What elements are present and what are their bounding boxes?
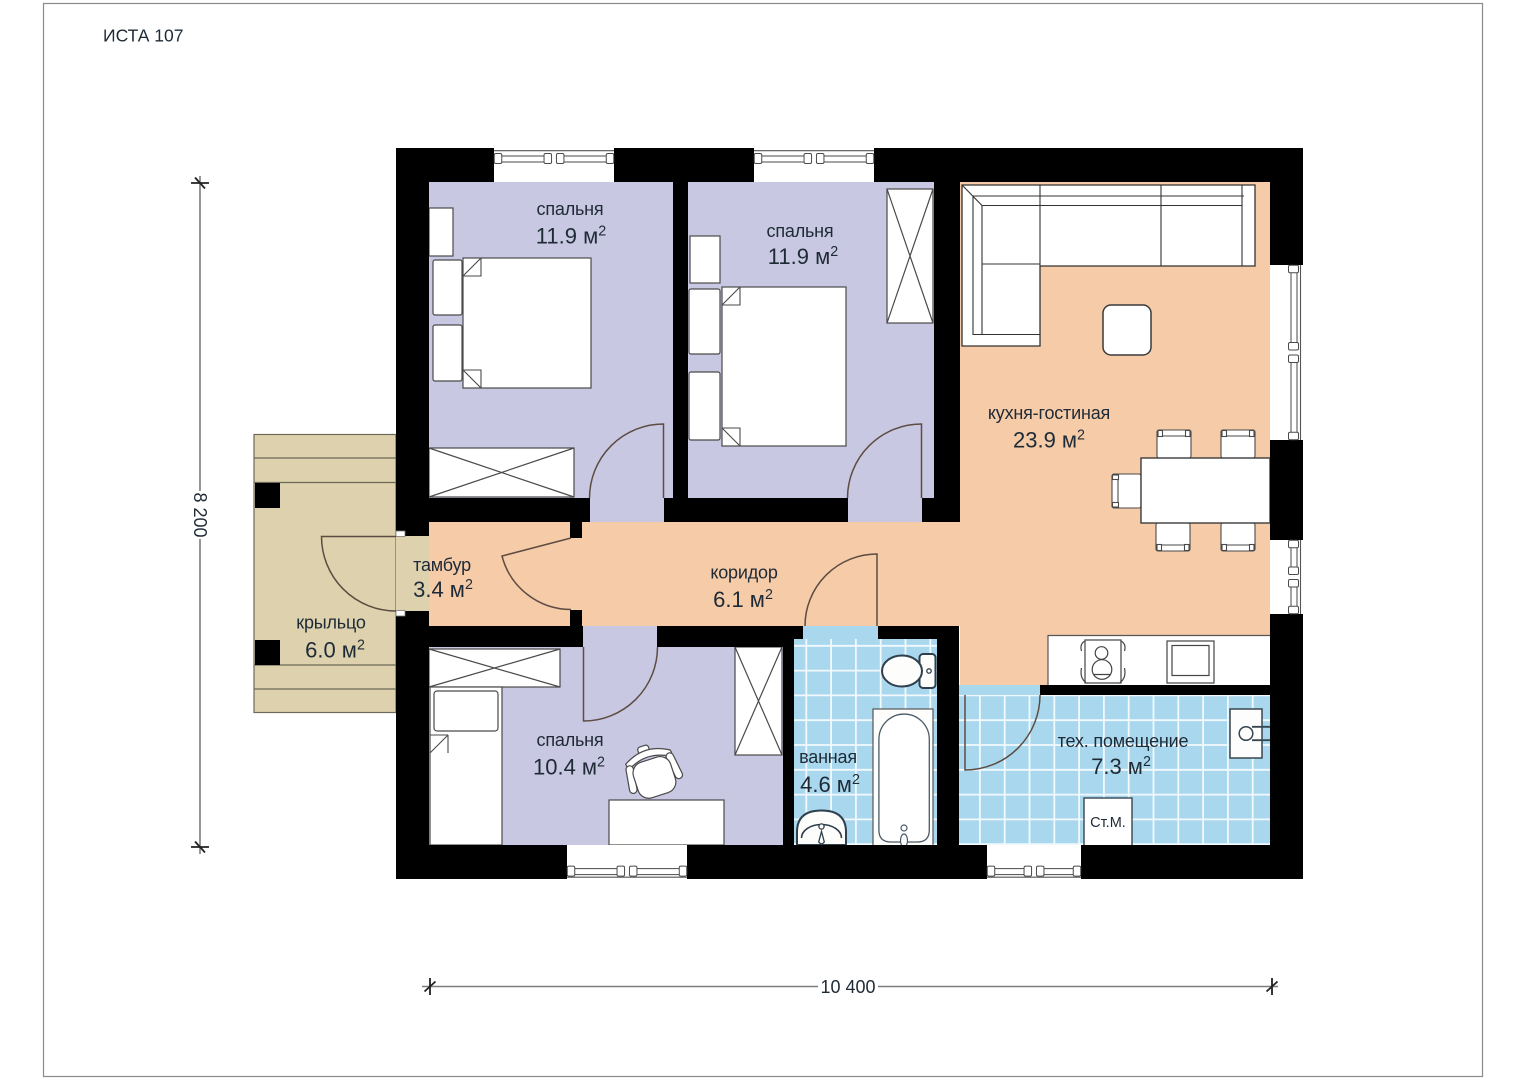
svg-text:спальня: спальня xyxy=(537,199,604,219)
svg-text:тех. помещение: тех. помещение xyxy=(1058,731,1189,751)
svg-text:3.4 м2: 3.4 м2 xyxy=(413,577,473,602)
svg-text:спальня: спальня xyxy=(537,730,604,750)
svg-text:10.4 м2: 10.4 м2 xyxy=(533,755,605,780)
svg-text:тамбур: тамбур xyxy=(413,555,471,575)
svg-text:коридор: коридор xyxy=(710,563,777,583)
svg-text:10 400: 10 400 xyxy=(820,977,875,997)
svg-text:ванная: ванная xyxy=(799,747,857,767)
svg-text:6.1 м2: 6.1 м2 xyxy=(713,587,773,612)
svg-text:спальня: спальня xyxy=(767,221,834,241)
svg-text:6.0 м2: 6.0 м2 xyxy=(305,638,365,663)
svg-text:кухня-гостиная: кухня-гостиная xyxy=(988,403,1110,423)
svg-text:23.9 м2: 23.9 м2 xyxy=(1013,428,1085,453)
svg-text:Ст.М.: Ст.М. xyxy=(1090,815,1126,831)
svg-text:7.3 м2: 7.3 м2 xyxy=(1091,754,1151,779)
svg-text:ИСТА 107: ИСТА 107 xyxy=(103,26,183,46)
svg-text:крыльцо: крыльцо xyxy=(296,613,366,633)
svg-text:11.9 м2: 11.9 м2 xyxy=(536,224,606,249)
svg-text:4.6 м2: 4.6 м2 xyxy=(800,772,860,797)
svg-text:8 200: 8 200 xyxy=(190,492,210,537)
svg-text:11.9 м2: 11.9 м2 xyxy=(768,244,838,269)
